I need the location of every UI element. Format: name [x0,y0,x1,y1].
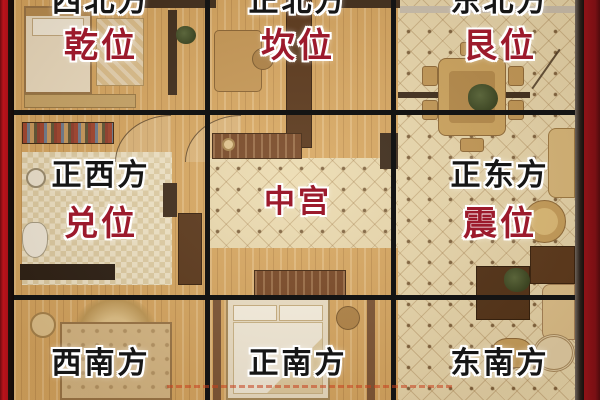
floorplan-canvas [14,0,575,400]
right-frame-border [584,0,600,400]
south-marker-dashed-line [167,385,452,388]
lighting-vignette [14,0,575,400]
grid-vertical-line [391,0,396,400]
grid-vertical-line [205,0,210,400]
left-frame-border [0,0,8,400]
left-frame-shadow [8,0,14,400]
right-frame-shadow [575,0,584,400]
grid-horizontal-line [14,110,575,115]
grid-horizontal-line [14,295,575,300]
fengshui-floorplan: 西北方 乾位 正北方 坎位 东北方 艮位 正西方 兑位 中宫 正东方 震位 西南… [0,0,600,400]
